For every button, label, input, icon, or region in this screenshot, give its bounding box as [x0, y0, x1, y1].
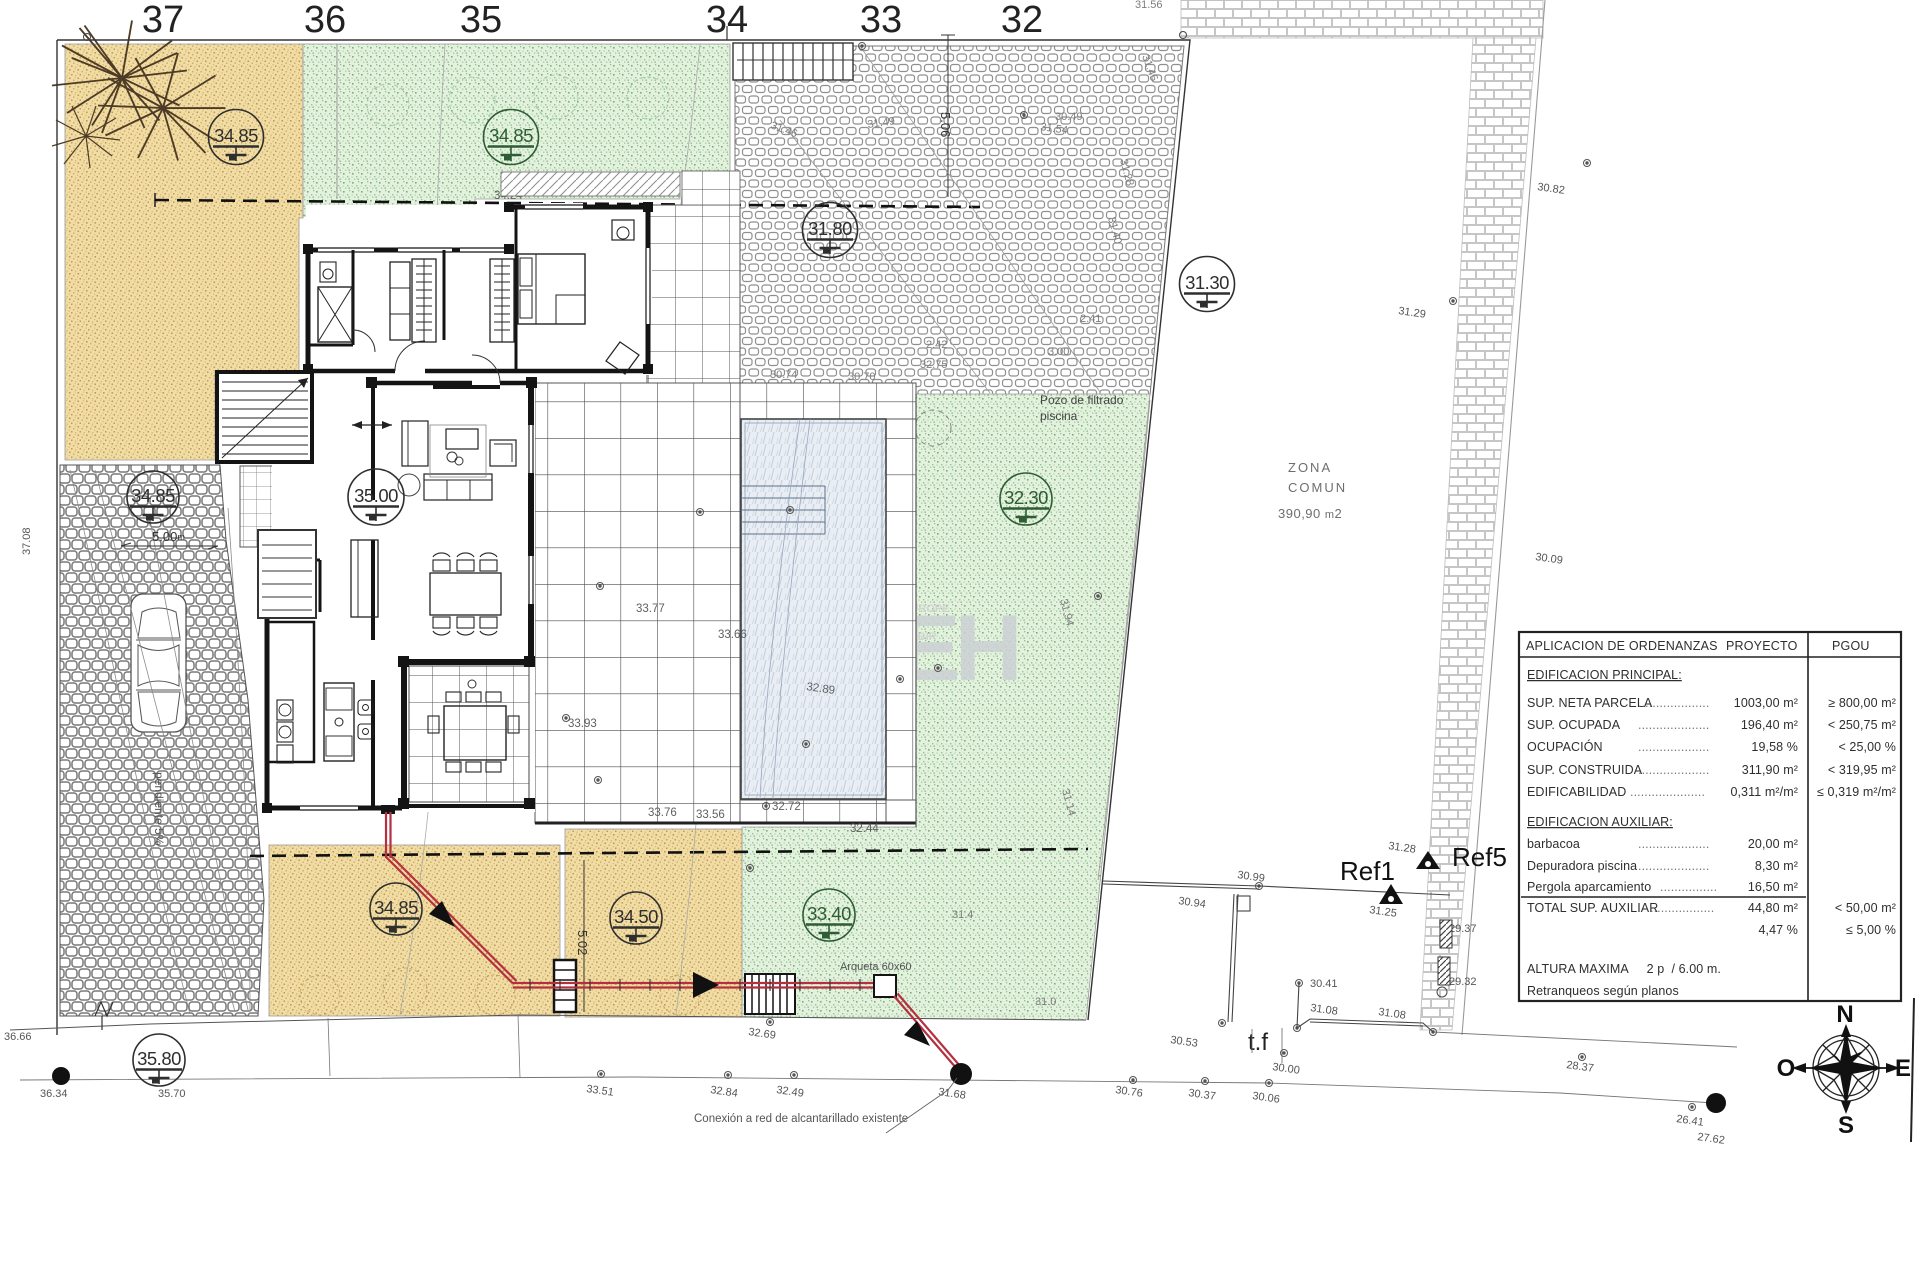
svg-text:36.66: 36.66: [4, 1031, 32, 1043]
svg-text:O: O: [1777, 1055, 1796, 1082]
svg-text:31.4: 31.4: [952, 909, 973, 921]
svg-text:32.30: 32.30: [1004, 487, 1048, 508]
svg-text:33.66: 33.66: [718, 629, 747, 641]
svg-text:33.93: 33.93: [568, 718, 597, 730]
svg-text:piscina: piscina: [1040, 409, 1078, 423]
svg-text:35.00: 35.00: [354, 485, 398, 506]
svg-text:5.00m: 5.00m: [152, 529, 185, 544]
svg-text:33.40: 33.40: [807, 903, 851, 924]
svg-text:Ref5: Ref5: [1452, 842, 1507, 872]
svg-text:≥ 800,00 m²: ≥ 800,00 m²: [1828, 696, 1896, 710]
svg-text:ZONA: ZONA: [1288, 460, 1332, 475]
svg-text:35.70: 35.70: [158, 1088, 186, 1100]
svg-text:SUP. CONSTRUIDA: SUP. CONSTRUIDA: [1527, 763, 1643, 777]
svg-text:Ref1: Ref1: [1340, 856, 1395, 886]
svg-text:EDIFICABILIDAD: EDIFICABILIDAD: [1527, 785, 1626, 799]
svg-text:390,90 m2: 390,90 m2: [1278, 506, 1342, 521]
svg-text:30.70: 30.70: [848, 371, 876, 383]
svg-text:barbacoa: barbacoa: [1527, 837, 1580, 851]
svg-text:....................: ....................: [1638, 837, 1709, 851]
svg-text:20,00 m²: 20,00 m²: [1748, 837, 1798, 851]
svg-text:< 25,00 %: < 25,00 %: [1838, 740, 1896, 754]
svg-text:36: 36: [304, 0, 346, 41]
svg-text:≤ 0,319 m²/m²: ≤ 0,319 m²/m²: [1817, 785, 1896, 799]
svg-text:30.41: 30.41: [1310, 978, 1338, 990]
svg-text:31.30: 31.30: [1185, 272, 1229, 293]
svg-text:31.0: 31.0: [1035, 996, 1056, 1008]
svg-text:APLICACION DE ORDENANZAS: APLICACION DE ORDENANZAS: [1526, 639, 1718, 653]
svg-text:< 250,75 m²: < 250,75 m²: [1828, 718, 1896, 732]
svg-text:....................: ....................: [1638, 763, 1709, 777]
svg-text:35: 35: [460, 0, 502, 41]
svg-text:34.85: 34.85: [489, 125, 533, 146]
svg-text:34.50: 34.50: [614, 906, 658, 927]
svg-text:..................: ..................: [1650, 901, 1714, 915]
svg-text:COMUN: COMUN: [1288, 480, 1347, 495]
svg-text:32.44: 32.44: [850, 823, 879, 835]
svg-text:t.f: t.f: [1248, 1029, 1268, 1056]
svg-text:Depuradora piscina: Depuradora piscina: [1527, 859, 1637, 873]
svg-text:37: 37: [142, 0, 184, 41]
svg-text:.....................: .....................: [1630, 785, 1705, 799]
svg-text:196,40 m²: 196,40 m²: [1741, 718, 1798, 732]
svg-text:30.49: 30.49: [1055, 111, 1083, 123]
svg-text:Arqueta 60x60: Arqueta 60x60: [840, 961, 912, 973]
svg-text:311,90 m²: 311,90 m²: [1742, 763, 1798, 777]
svg-text:Pergola aparcamiento: Pergola aparcamiento: [1527, 880, 1651, 894]
svg-text:pendiente 5%: pendiente 5%: [152, 772, 166, 846]
svg-text:....................: ....................: [1638, 696, 1709, 710]
svg-text:1003,00 m²: 1003,00 m²: [1734, 696, 1798, 710]
svg-text:2.41: 2.41: [1080, 313, 1101, 325]
svg-text:29.32: 29.32: [1449, 976, 1477, 988]
svg-text:19,58 %: 19,58 %: [1751, 740, 1798, 754]
svg-text:32.75: 32.75: [920, 359, 948, 371]
svg-text:31.80: 31.80: [808, 218, 852, 239]
svg-text:36.34: 36.34: [40, 1088, 68, 1100]
svg-text:< 50,00 m²: < 50,00 m²: [1835, 901, 1896, 915]
svg-text:34.85: 34.85: [131, 485, 175, 506]
svg-text:TOTAL SUP. AUXILIAR: TOTAL SUP. AUXILIAR: [1527, 901, 1658, 915]
svg-text:SUP. NETA PARCELA: SUP. NETA PARCELA: [1527, 696, 1653, 710]
svg-text:................: ................: [1660, 880, 1717, 894]
svg-text:....................: ....................: [1638, 740, 1709, 754]
svg-text:PROYECTO: PROYECTO: [1726, 639, 1798, 653]
svg-text:< 319,95 m²: < 319,95 m²: [1828, 763, 1896, 777]
svg-text:31.56: 31.56: [1135, 0, 1163, 11]
svg-text:OCUPACIÓN: OCUPACIÓN: [1527, 739, 1603, 754]
svg-text:3.00: 3.00: [1048, 346, 1069, 358]
svg-text:Pozo de filtrado: Pozo de filtrado: [1040, 393, 1124, 407]
svg-text:29.37: 29.37: [1449, 923, 1477, 935]
svg-text:ALTURA MAXIMA 2 p / 6.00: ALTURA MAXIMA 2 p / 6.00 m.: [1527, 962, 1721, 976]
svg-text:Retranqueos según planos: Retranqueos según planos: [1527, 984, 1679, 998]
svg-text:N: N: [1836, 1001, 1853, 1028]
svg-text:2.42: 2.42: [926, 339, 947, 351]
svg-text:33.56: 33.56: [696, 809, 725, 821]
svg-text:E: E: [1895, 1055, 1911, 1082]
svg-text:16,50 m²: 16,50 m²: [1748, 880, 1798, 894]
svg-text:33.77: 33.77: [636, 603, 665, 615]
svg-text:34.85: 34.85: [214, 125, 258, 146]
svg-text:5.02: 5.02: [575, 930, 590, 955]
svg-text:44,80 m²: 44,80 m²: [1748, 901, 1798, 915]
svg-text:....................: ....................: [1638, 718, 1709, 732]
svg-text:PGOU: PGOU: [1832, 639, 1870, 653]
svg-text:32: 32: [1001, 0, 1043, 41]
svg-text:5.06: 5.06: [938, 112, 953, 137]
svg-text:32.72: 32.72: [772, 801, 801, 813]
svg-text:0,311 m²/m²: 0,311 m²/m²: [1730, 785, 1798, 799]
svg-text:30.74: 30.74: [770, 369, 798, 381]
svg-text:S: S: [1838, 1112, 1854, 1139]
svg-text:33.76: 33.76: [648, 807, 677, 819]
svg-text:34.85: 34.85: [374, 897, 418, 918]
svg-text:35.80: 35.80: [137, 1048, 181, 1069]
svg-text:≤ 5,00 %: ≤ 5,00 %: [1846, 923, 1896, 937]
svg-text:EDIFICACION PRINCIPAL:: EDIFICACION PRINCIPAL:: [1527, 668, 1682, 682]
svg-text:....................: ....................: [1638, 859, 1709, 873]
svg-text:Conexión a red de alcantarilla: Conexión a red de alcantarillado existen…: [694, 1113, 908, 1125]
svg-text:37.08: 37.08: [21, 527, 33, 555]
svg-text:EDIFICACION AUXILIAR:: EDIFICACION AUXILIAR:: [1527, 815, 1673, 829]
svg-text:SUP. OCUPADA: SUP. OCUPADA: [1527, 718, 1621, 732]
svg-text:4,47 %: 4,47 %: [1758, 923, 1798, 937]
svg-text:8,30 m²: 8,30 m²: [1755, 859, 1798, 873]
svg-text:33: 33: [860, 0, 902, 41]
